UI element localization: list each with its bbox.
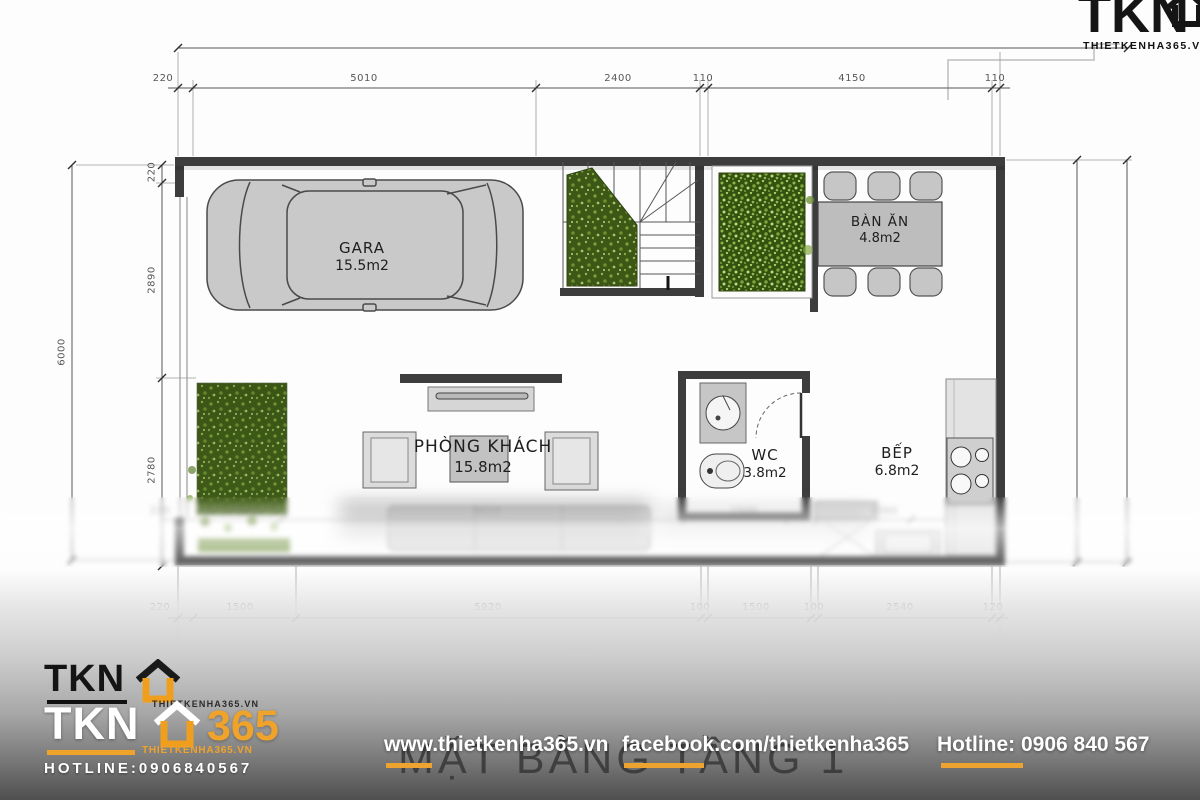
room-label-living: PHÒNG KHÁCH 15.8m2 (414, 437, 553, 476)
dim-label: 4150 (838, 73, 865, 84)
logo-tkn-dark: TKN (44, 658, 125, 701)
footer-underline (386, 763, 432, 768)
room-label-dining: BÀN ĂN 4.8m2 (851, 214, 909, 246)
dim-label: 5010 (350, 73, 377, 84)
logo-site-orange: THIETKENHA365.VN (142, 745, 253, 756)
dim-label: 110 (693, 73, 714, 84)
room-label-gara: GARA 15.5m2 (335, 239, 389, 274)
house-icon (150, 700, 204, 748)
dimension-lines (72, 48, 1128, 660)
room-name: PHÒNG KHÁCH (414, 437, 553, 457)
dim-label: 2890 (147, 266, 158, 293)
room-area: 3.8m2 (743, 465, 786, 481)
footer-facebook: facebook.com/thietkenha365 (622, 733, 909, 757)
floor-plan-page: 220 5010 2400 110 4150 110 6000 220 2890… (0, 0, 1200, 800)
logo-hotline: HOTLINE:0906840567 (44, 760, 252, 777)
room-name: BÀN ĂN (851, 214, 909, 230)
understair-planter (567, 168, 637, 286)
room-area: 4.8m2 (851, 231, 909, 246)
dim-label: 2780 (147, 456, 158, 483)
room-label-kitchen: BẾP 6.8m2 (875, 444, 920, 479)
logo-365: 365 (207, 702, 279, 751)
dim-label: 110 (985, 73, 1006, 84)
blur-band (0, 497, 1200, 567)
logo-tkn-white: TKN (44, 698, 139, 750)
room-area: 6.8m2 (875, 463, 920, 479)
dim-label: 220 (153, 73, 174, 84)
room-area: 15.5m2 (335, 258, 389, 274)
footer-website: www.thietkenha365.vn (384, 733, 608, 757)
watermark-outline (948, 44, 1120, 100)
room-label-wc: WC 3.8m2 (743, 446, 786, 481)
dim-label: 220 (147, 162, 158, 183)
room-name: WC (743, 446, 786, 464)
courtyard-planter (712, 166, 814, 298)
dim-label: 2400 (604, 73, 631, 84)
dim-label: 6000 (57, 338, 68, 365)
footer-underline (941, 763, 1023, 768)
room-name: GARA (335, 239, 389, 257)
house-icon (133, 659, 183, 703)
footer-hotline: Hotline: 0906 840 567 (937, 733, 1149, 757)
footer-underline (624, 763, 704, 768)
room-name: BẾP (875, 444, 920, 462)
logo-underline-orange (47, 750, 135, 755)
garage-door-lines (180, 197, 187, 518)
room-area: 15.8m2 (414, 458, 553, 476)
logo-site-top: THIETKENHA365.VN (1083, 40, 1200, 52)
house-icon (1166, 0, 1200, 28)
